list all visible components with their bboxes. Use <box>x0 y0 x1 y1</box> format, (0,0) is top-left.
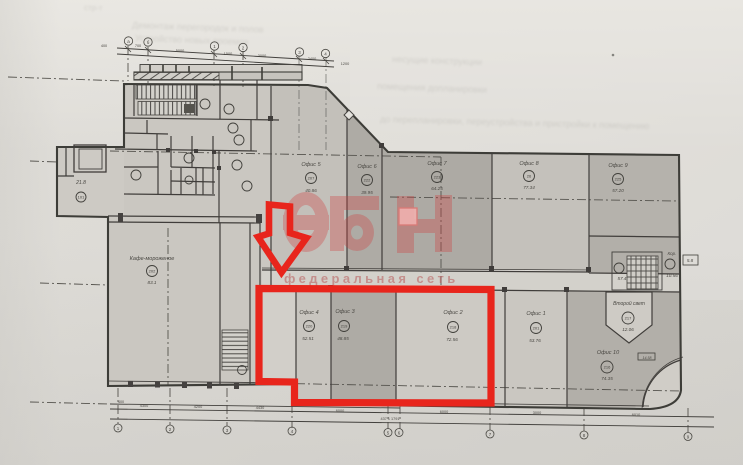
svg-text:48.85: 48.85 <box>337 336 349 341</box>
svg-text:201: 201 <box>533 326 540 331</box>
svg-text:52.51: 52.51 <box>302 336 314 341</box>
svg-text:700: 700 <box>135 44 141 48</box>
svg-text:218: 218 <box>450 325 457 330</box>
svg-text:12.06: 12.06 <box>622 327 634 332</box>
svg-text:Кор.: Кор. <box>668 251 677 256</box>
svg-text:220: 220 <box>306 324 313 329</box>
svg-text:Офис 4: Офис 4 <box>299 310 318 316</box>
svg-text:Офис 7: Офис 7 <box>427 161 447 167</box>
svg-text:10.56: 10.56 <box>666 273 678 278</box>
svg-text:57.4: 57.4 <box>618 276 627 281</box>
svg-text:21.8: 21.8 <box>75 180 86 186</box>
svg-text:Офис 10: Офис 10 <box>597 350 620 356</box>
svg-text:б: б <box>147 40 150 45</box>
svg-text:1200: 1200 <box>341 62 349 66</box>
svg-text:Офис 8: Офис 8 <box>519 161 539 167</box>
svg-text:4300: 4300 <box>140 404 148 408</box>
svg-text:437 1 1791: 437 1 1791 <box>380 417 399 421</box>
svg-text:Офис 2: Офис 2 <box>443 310 462 316</box>
svg-text:6000: 6000 <box>440 410 448 414</box>
svg-text:стр-т: стр-т <box>84 3 103 13</box>
svg-text:207: 207 <box>308 176 315 181</box>
svg-text:219: 219 <box>341 324 348 329</box>
svg-text:400: 400 <box>101 44 107 48</box>
svg-text:217: 217 <box>625 316 632 321</box>
svg-text:4430: 4430 <box>256 406 264 410</box>
svg-text:57.20: 57.20 <box>612 188 624 193</box>
svg-text:Офис 3: Офис 3 <box>335 309 355 315</box>
svg-text:225: 225 <box>615 177 622 182</box>
svg-text:202: 202 <box>149 269 156 274</box>
svg-text:6010: 6010 <box>632 413 640 417</box>
svg-text:5.8: 5.8 <box>687 258 694 263</box>
svg-text:Офис 5: Офис 5 <box>301 162 321 168</box>
svg-text:222: 222 <box>364 178 371 183</box>
svg-text:223: 223 <box>434 175 441 180</box>
svg-text:Офис 9: Офис 9 <box>608 163 627 169</box>
svg-text:64.25: 64.25 <box>431 186 443 191</box>
svg-text:1500: 1500 <box>224 52 232 56</box>
svg-text:3000: 3000 <box>533 411 541 415</box>
svg-text:5000: 5000 <box>176 49 184 53</box>
svg-text:2400: 2400 <box>308 57 316 61</box>
svg-text:216: 216 <box>604 365 611 370</box>
svg-text:26: 26 <box>527 174 532 179</box>
svg-text:400: 400 <box>118 400 124 404</box>
svg-text:53.76: 53.76 <box>529 338 541 343</box>
svg-text:39.95: 39.95 <box>361 190 373 195</box>
svg-text:4200: 4200 <box>194 405 202 409</box>
svg-text:Офис 1: Офис 1 <box>526 311 545 317</box>
svg-text:федеральная сеть: федеральная сеть <box>284 271 459 286</box>
svg-text:Кафе-мороженое: Кафе-мороженое <box>130 256 175 262</box>
svg-text:6000: 6000 <box>336 409 344 413</box>
svg-text:Второй свет: Второй свет <box>613 300 645 307</box>
svg-text:72.56: 72.56 <box>446 337 458 342</box>
svg-text:Офис 6: Офис 6 <box>357 164 377 170</box>
svg-text:3000: 3000 <box>258 54 266 58</box>
svg-text:101: 101 <box>78 195 85 200</box>
svg-text:74.35: 74.35 <box>601 376 613 381</box>
svg-text:83.1: 83.1 <box>148 280 157 285</box>
svg-text:14.58: 14.58 <box>643 356 652 360</box>
svg-text:77.34: 77.34 <box>523 185 535 190</box>
